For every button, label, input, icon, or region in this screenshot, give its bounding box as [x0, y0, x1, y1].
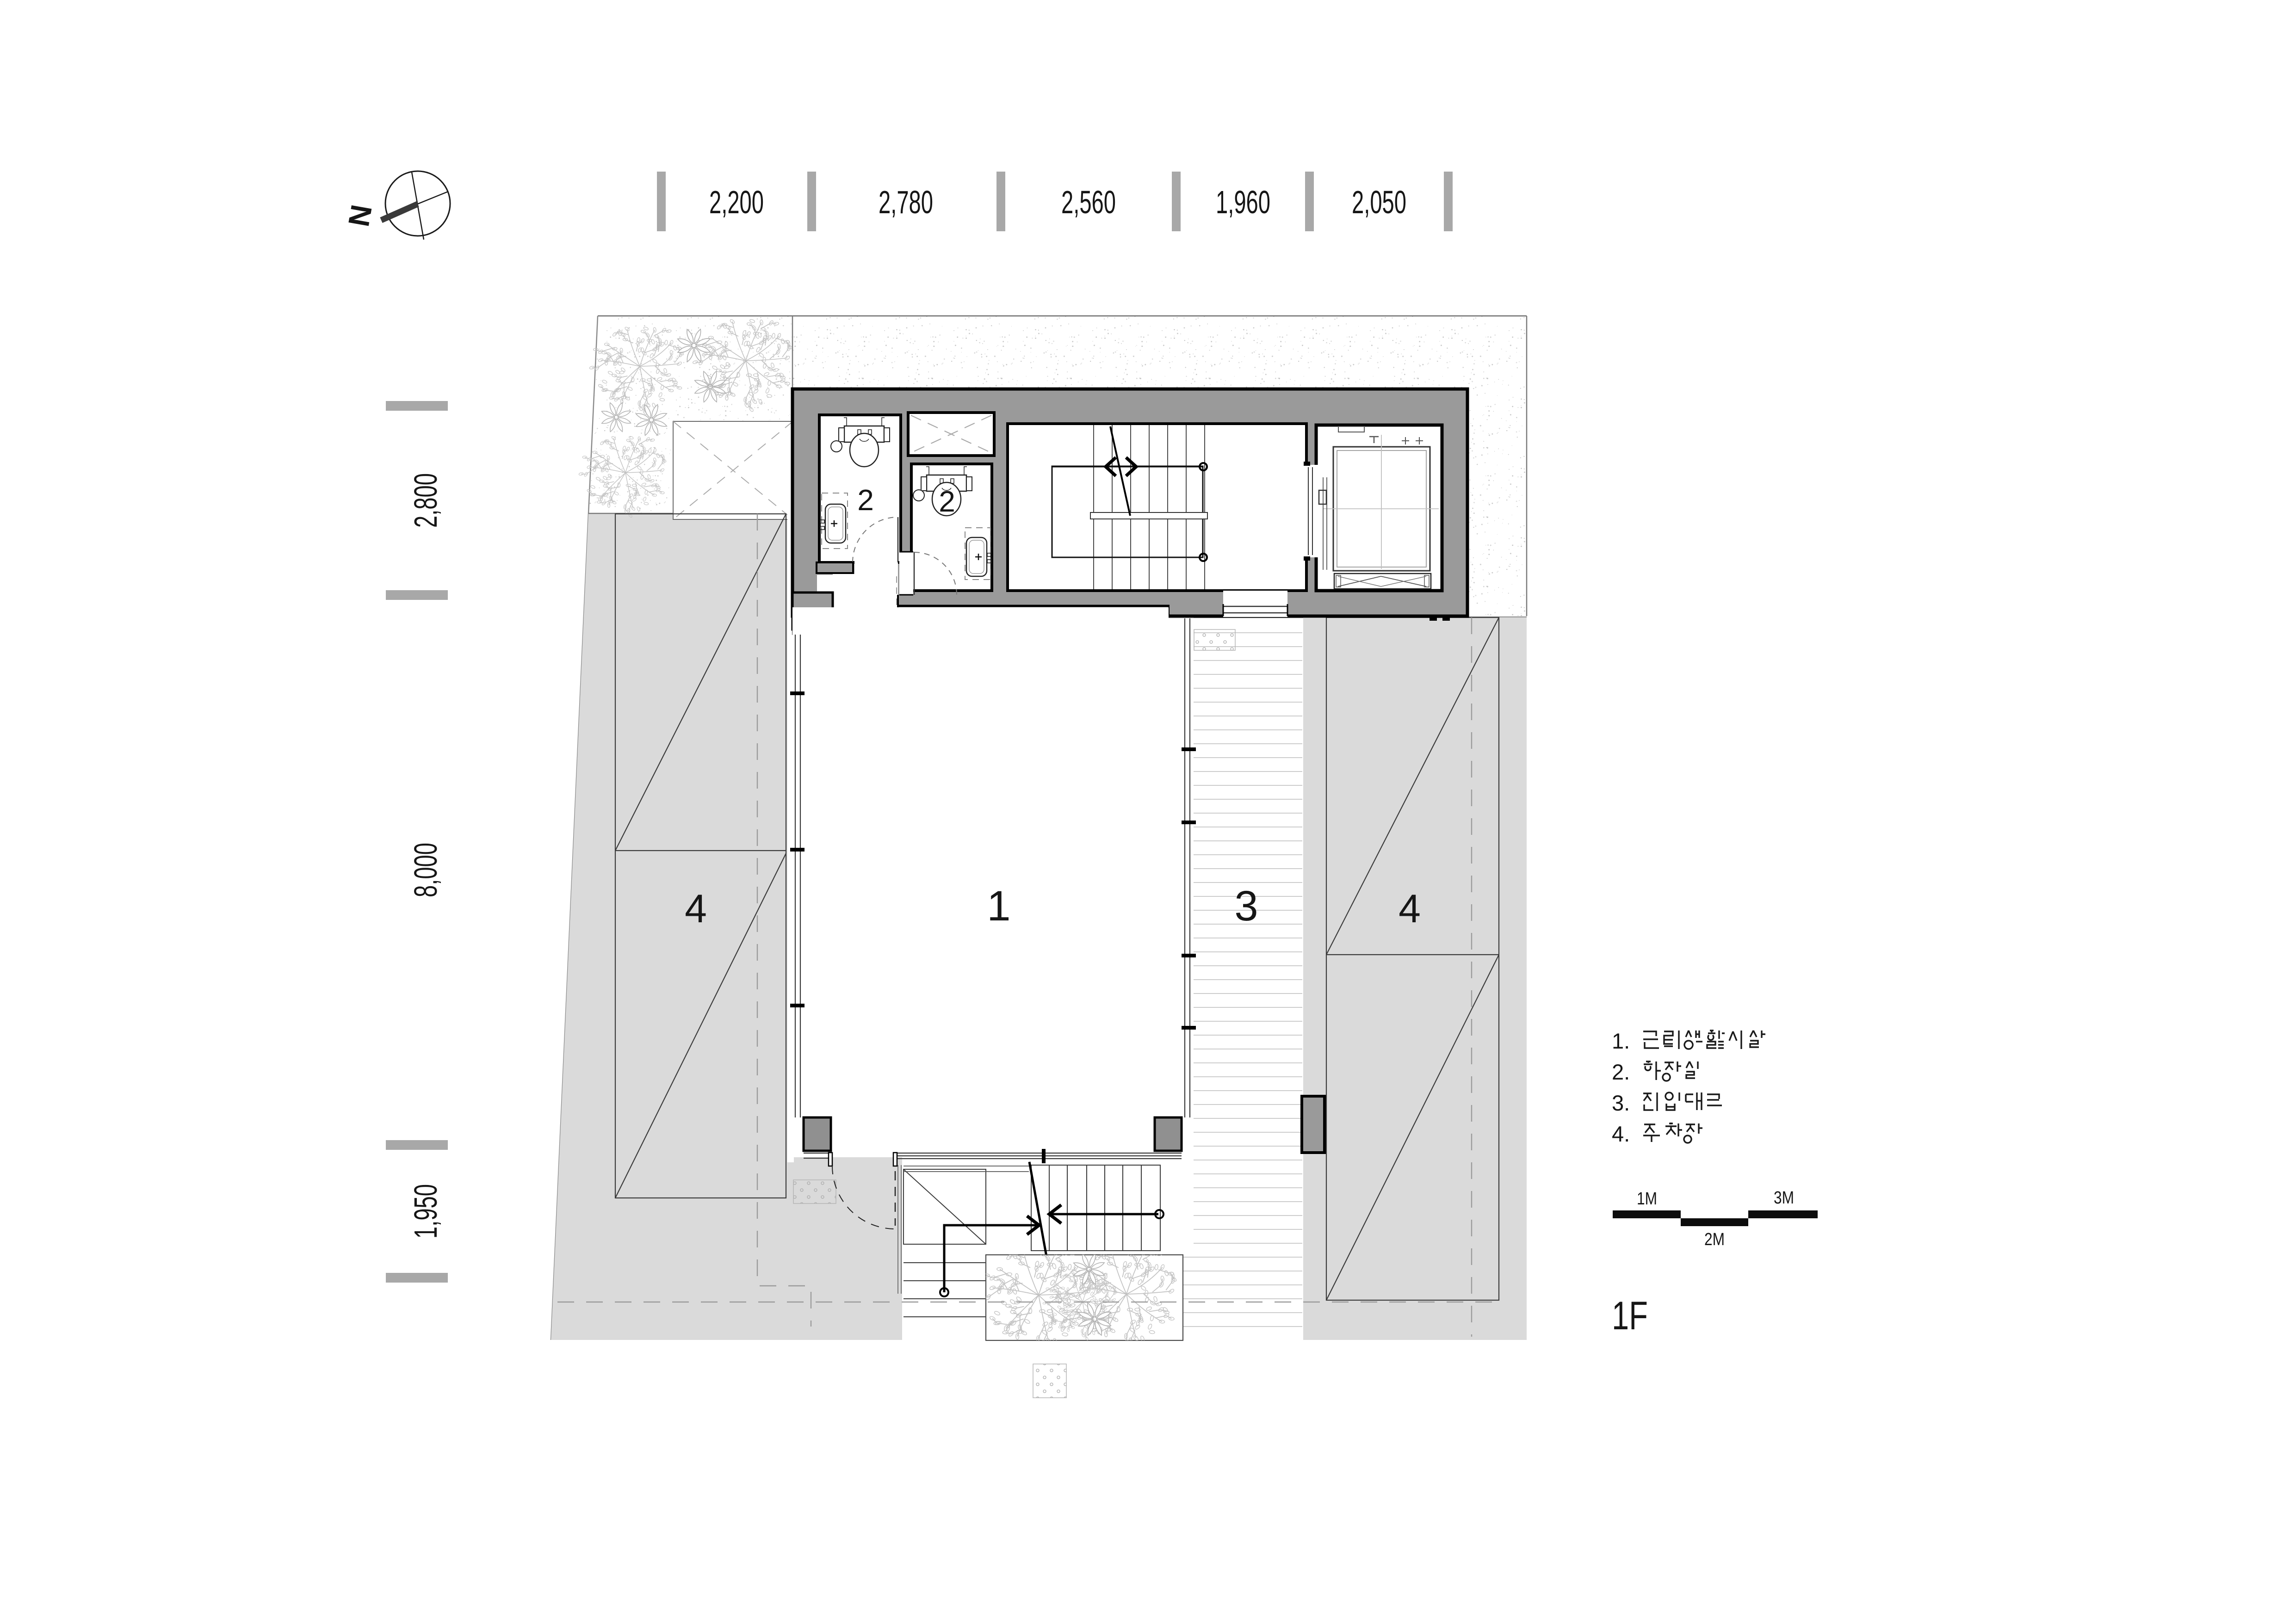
svg-text:3: 3	[1234, 882, 1258, 930]
svg-text:2,780: 2,780	[879, 184, 933, 220]
svg-text:2,560: 2,560	[1061, 184, 1116, 220]
svg-text:2.: 2.	[1612, 1060, 1630, 1084]
svg-text:2,800: 2,800	[408, 473, 444, 528]
svg-text:1F: 1F	[1612, 1294, 1648, 1338]
svg-text:2M: 2M	[1704, 1230, 1725, 1249]
svg-text:2,050: 2,050	[1352, 184, 1406, 220]
svg-text:4: 4	[685, 887, 707, 931]
svg-text:2: 2	[857, 483, 874, 517]
svg-text:4: 4	[1399, 887, 1421, 931]
svg-text:1: 1	[987, 882, 1010, 930]
svg-text:1,950: 1,950	[408, 1184, 444, 1239]
svg-text:3M: 3M	[1774, 1188, 1794, 1208]
svg-text:8,000: 8,000	[408, 843, 444, 897]
svg-text:1M: 1M	[1637, 1189, 1657, 1209]
svg-text:4.: 4.	[1612, 1122, 1630, 1146]
svg-text:1.: 1.	[1612, 1029, 1630, 1053]
svg-text:2: 2	[939, 485, 955, 518]
svg-text:2,200: 2,200	[709, 184, 764, 220]
svg-text:N: N	[342, 202, 378, 229]
svg-text:3.: 3.	[1612, 1091, 1630, 1115]
svg-text:1,960: 1,960	[1216, 184, 1270, 220]
